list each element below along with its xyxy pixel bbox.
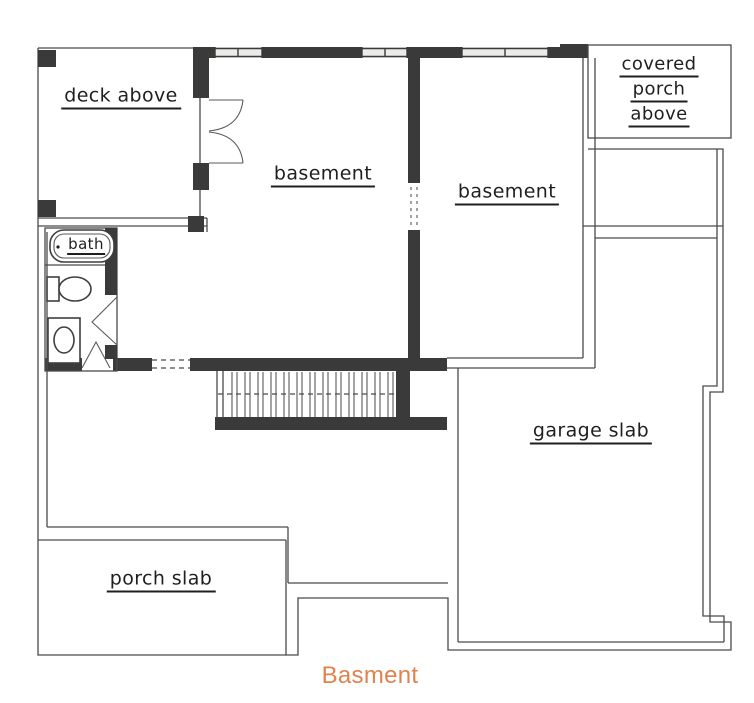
porch-slab-label: porch slab [107, 568, 216, 593]
middle-wall [408, 47, 420, 371]
covered-porch-label-line3: above [628, 103, 689, 128]
garage-slab-label: garage slab [530, 420, 652, 445]
covered-porch-label-line2: porch [631, 78, 688, 103]
deck-outline [38, 48, 207, 232]
covered-porch-label-line1: covered [620, 53, 699, 78]
window-icon-2 [362, 47, 407, 58]
floor-plan-page: deck above basement basement covered por… [0, 0, 754, 703]
stairs-symbol [217, 371, 396, 418]
porch-slab-outline [38, 540, 286, 655]
wall-opening-dashes [411, 187, 417, 227]
window-icon-3 [462, 47, 548, 58]
covered-porch-label: covered porch above [620, 53, 699, 128]
window-icon-1 [215, 47, 262, 58]
toilet-icon [47, 277, 91, 301]
basement-left-label: basement [271, 163, 375, 188]
sink-icon [48, 318, 80, 363]
basement-right-label: basement [455, 181, 559, 206]
outer-boundary [38, 48, 731, 655]
deck-corner-posts [38, 50, 204, 232]
basement-east-wall-lines [583, 58, 595, 368]
bath-label: bath [67, 235, 105, 255]
plan-caption: Basment [322, 662, 419, 690]
bottom-wall-dashes [152, 360, 190, 368]
garage-outline [447, 149, 724, 642]
deck-label: deck above [61, 85, 181, 110]
